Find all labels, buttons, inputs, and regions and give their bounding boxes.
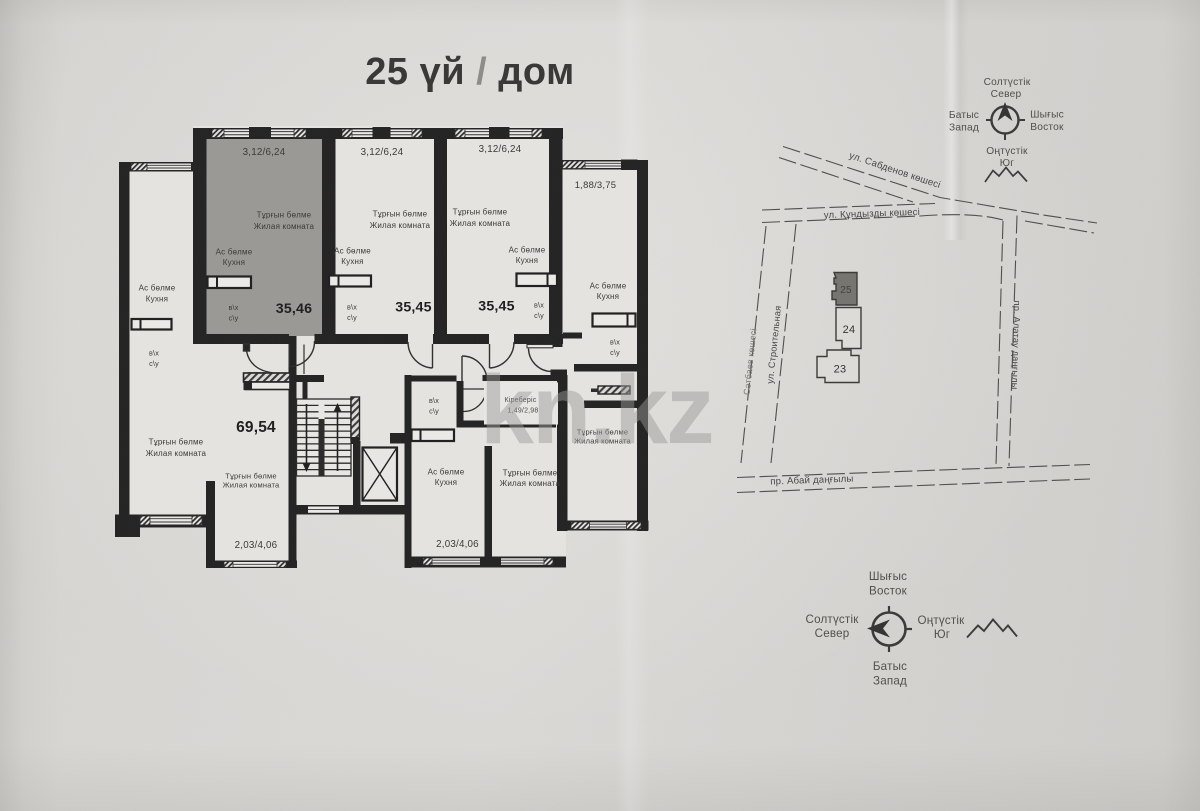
svg-text:пр. Абай даңғылы: пр. Абай даңғылы — [770, 474, 854, 488]
svg-text:Кухня: Кухня — [223, 258, 245, 267]
svg-text:Тұрғын бөлме: Тұрғын бөлме — [373, 210, 428, 219]
svg-text:Юг: Юг — [934, 628, 950, 641]
svg-text:2,03/4,06: 2,03/4,06 — [235, 540, 278, 551]
svg-text:Оңтүстік: Оңтүстік — [986, 146, 1028, 157]
svg-text:Ас бөлме: Ас бөлме — [428, 468, 465, 477]
svg-text:Ас бөлме: Ас бөлме — [590, 282, 627, 291]
svg-text:2,03/4,06: 2,03/4,06 — [436, 539, 479, 550]
svg-text:35,45: 35,45 — [395, 300, 432, 316]
svg-text:с\у: с\у — [610, 348, 620, 357]
svg-text:ул. Құндызды көшесі: ул. Құндызды көшесі — [824, 207, 921, 221]
svg-text:в\х: в\х — [149, 349, 159, 358]
svg-text:Солтүстік: Солтүстік — [984, 77, 1031, 88]
svg-text:в\х: в\х — [610, 338, 620, 347]
svg-text:Ас бөлме: Ас бөлме — [139, 284, 176, 293]
svg-text:Ас бөлме: Ас бөлме — [216, 248, 253, 257]
svg-text:35,45: 35,45 — [478, 299, 515, 315]
svg-text:Тұрғын бөлме: Тұрғын бөлме — [257, 211, 312, 220]
svg-text:Запад: Запад — [873, 675, 907, 688]
svg-text:Кухня: Кухня — [341, 257, 363, 266]
svg-text:Север: Север — [991, 89, 1022, 100]
svg-text:Север: Север — [815, 627, 850, 640]
svg-text:24: 24 — [843, 324, 856, 336]
svg-text:Шығыс: Шығыс — [869, 570, 907, 583]
svg-text:с\у: с\у — [149, 359, 159, 368]
svg-text:Жилая комната: Жилая комната — [450, 219, 511, 228]
svg-text:Сәтбаев көшесі: Сәтбаев көшесі — [742, 328, 759, 396]
svg-text:в\х: в\х — [228, 303, 238, 312]
svg-text:1,49/2,98: 1,49/2,98 — [508, 408, 539, 415]
svg-text:23: 23 — [834, 364, 847, 376]
svg-text:Оңтүстік: Оңтүстік — [918, 614, 966, 627]
svg-text:с\у: с\у — [229, 314, 239, 323]
svg-text:Жилая комната: Жилая комната — [223, 481, 280, 490]
svg-text:ул. Строительная: ул. Строительная — [765, 305, 783, 384]
svg-text:25 үй / дом: 25 үй / дом — [365, 51, 574, 93]
svg-text:3,12/6,24: 3,12/6,24 — [361, 147, 404, 158]
svg-text:Жилая комната: Жилая комната — [500, 479, 561, 488]
svg-text:Батыс: Батыс — [873, 660, 907, 673]
svg-text:с\у: с\у — [534, 311, 544, 320]
svg-text:Тұрғын бөлме: Тұрғын бөлме — [225, 472, 276, 481]
svg-text:25: 25 — [840, 285, 852, 296]
svg-text:пр. Алатау даңғылы: пр. Алатау даңғылы — [1010, 301, 1022, 390]
svg-text:35,46: 35,46 — [276, 301, 313, 317]
svg-text:Кіреберіс: Кіреберіс — [505, 396, 537, 404]
svg-text:в\х: в\х — [534, 301, 544, 310]
svg-text:с\у: с\у — [347, 313, 357, 322]
svg-text:Тұрғын бөлме: Тұрғын бөлме — [577, 428, 628, 437]
svg-text:Кухня: Кухня — [516, 256, 538, 265]
svg-text:Кухня: Кухня — [597, 292, 619, 301]
svg-text:Жилая комната: Жилая комната — [370, 221, 431, 230]
svg-text:Ас бөлме: Ас бөлме — [334, 247, 371, 256]
svg-text:Восток: Восток — [869, 585, 908, 598]
svg-text:с\у: с\у — [429, 407, 439, 416]
svg-text:3,12/6,24: 3,12/6,24 — [243, 147, 286, 158]
svg-text:Кухня: Кухня — [435, 478, 457, 487]
svg-text:Восток: Восток — [1030, 122, 1064, 133]
svg-text:Кухня: Кухня — [146, 295, 168, 304]
svg-text:Запад: Запад — [949, 123, 979, 134]
svg-text:Солтүстік: Солтүстік — [806, 613, 860, 626]
svg-text:в\х: в\х — [347, 303, 357, 312]
svg-text:Тұрғын бөлме: Тұрғын бөлме — [453, 208, 508, 217]
svg-text:Жилая комната: Жилая комната — [254, 222, 315, 231]
svg-text:Тұрғын бөлме: Тұрғын бөлме — [503, 469, 558, 478]
svg-text:3,12/6,24: 3,12/6,24 — [479, 144, 522, 155]
svg-text:Шығыс: Шығыс — [1030, 110, 1064, 121]
svg-text:Ас бөлме: Ас бөлме — [509, 246, 546, 255]
svg-text:Юг: Юг — [1000, 158, 1014, 169]
svg-text:1,88/3,75: 1,88/3,75 — [575, 180, 616, 191]
svg-text:69,54: 69,54 — [236, 419, 276, 436]
svg-text:kn.kz: kn.kz — [480, 355, 713, 464]
svg-text:Тұрғын бөлме: Тұрғын бөлме — [149, 438, 204, 447]
svg-text:Жилая комната: Жилая комната — [574, 437, 631, 446]
svg-text:Жилая комната: Жилая комната — [146, 449, 207, 458]
svg-text:ул. Сабденов көшесі: ул. Сабденов көшесі — [848, 150, 942, 191]
svg-text:Батыс: Батыс — [949, 110, 979, 121]
svg-text:в\х: в\х — [429, 396, 439, 405]
